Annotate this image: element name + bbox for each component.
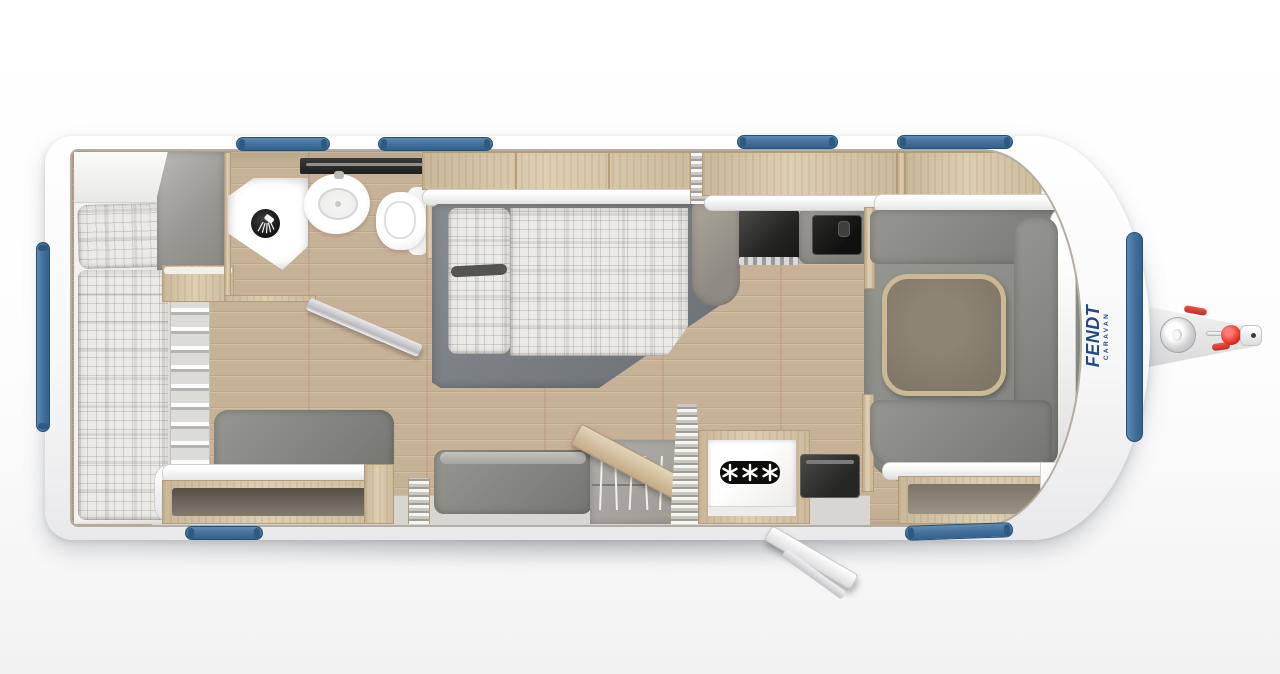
snowflake-rating-icon [720, 461, 780, 484]
washbasin-drain [335, 201, 341, 207]
washbasin-tap [334, 171, 344, 179]
concertina-door-small [408, 478, 430, 524]
overhead-locker-divider [608, 153, 610, 189]
coupling-ball [1221, 325, 1241, 345]
window-top-2 [378, 137, 493, 151]
kitchen-sink-foil [739, 257, 799, 265]
dinette-cushion-bottom [870, 400, 1052, 468]
floorplan-canvas: FENDT CARAVAN [0, 0, 1280, 674]
brand-logo: FENDT CARAVAN [1079, 297, 1115, 375]
bathroom-door-open [305, 298, 422, 358]
sofa-base-shelf [172, 488, 378, 516]
bathroom-mirror-shelf [300, 158, 434, 174]
hob-kettle [838, 221, 850, 237]
rear-wardrobe [157, 152, 224, 270]
french-bed-pillows [448, 208, 510, 354]
kitchen-end-panel [692, 204, 740, 306]
window-front [1126, 232, 1143, 442]
sofa-side-panel [364, 464, 394, 524]
kitchen-sink-unit [739, 210, 799, 264]
overhead-locker-divider [515, 153, 517, 189]
handbrake-handle [1184, 305, 1208, 316]
fridge-bottom-trim [708, 506, 796, 516]
dinette-base-shelf [908, 484, 1058, 514]
single-bed-pillow [77, 203, 165, 269]
bathroom-mirror-shelf-highlight [306, 163, 424, 166]
overhead-locker-dinette [905, 152, 1043, 198]
oven-handle [806, 460, 854, 464]
window-top-3 [737, 135, 838, 149]
chest-top-edge [440, 452, 586, 464]
window-top-4 [897, 135, 1013, 149]
sofa-backrest [214, 410, 394, 472]
bed-head-shelf [74, 152, 170, 203]
gas-hob [812, 215, 862, 255]
rear-cabinet-top-edge [164, 267, 232, 274]
shower-head-disc [251, 209, 280, 238]
dinette-table [882, 274, 1006, 396]
bathroom-wall-lower [224, 295, 316, 302]
hitch-head-pin [1251, 333, 1256, 338]
jockey-wheel-hub [1172, 329, 1182, 341]
overhead-locker-kitchen [702, 152, 897, 196]
window-rear [36, 242, 50, 432]
shower-icon [251, 209, 280, 238]
brand-name: FENDT [1084, 305, 1102, 368]
caravan-interior [70, 149, 1082, 527]
freezer-rating-badge [720, 461, 780, 484]
overhead-locker-bedroom [422, 152, 700, 190]
bed-bolster [422, 189, 700, 206]
brand-subtitle: CARAVAN [1104, 312, 1111, 360]
window-bottom-1 [185, 526, 263, 540]
toilet-seat [384, 201, 416, 239]
french-bed-duvet [510, 208, 688, 356]
window-top-1 [236, 137, 330, 151]
